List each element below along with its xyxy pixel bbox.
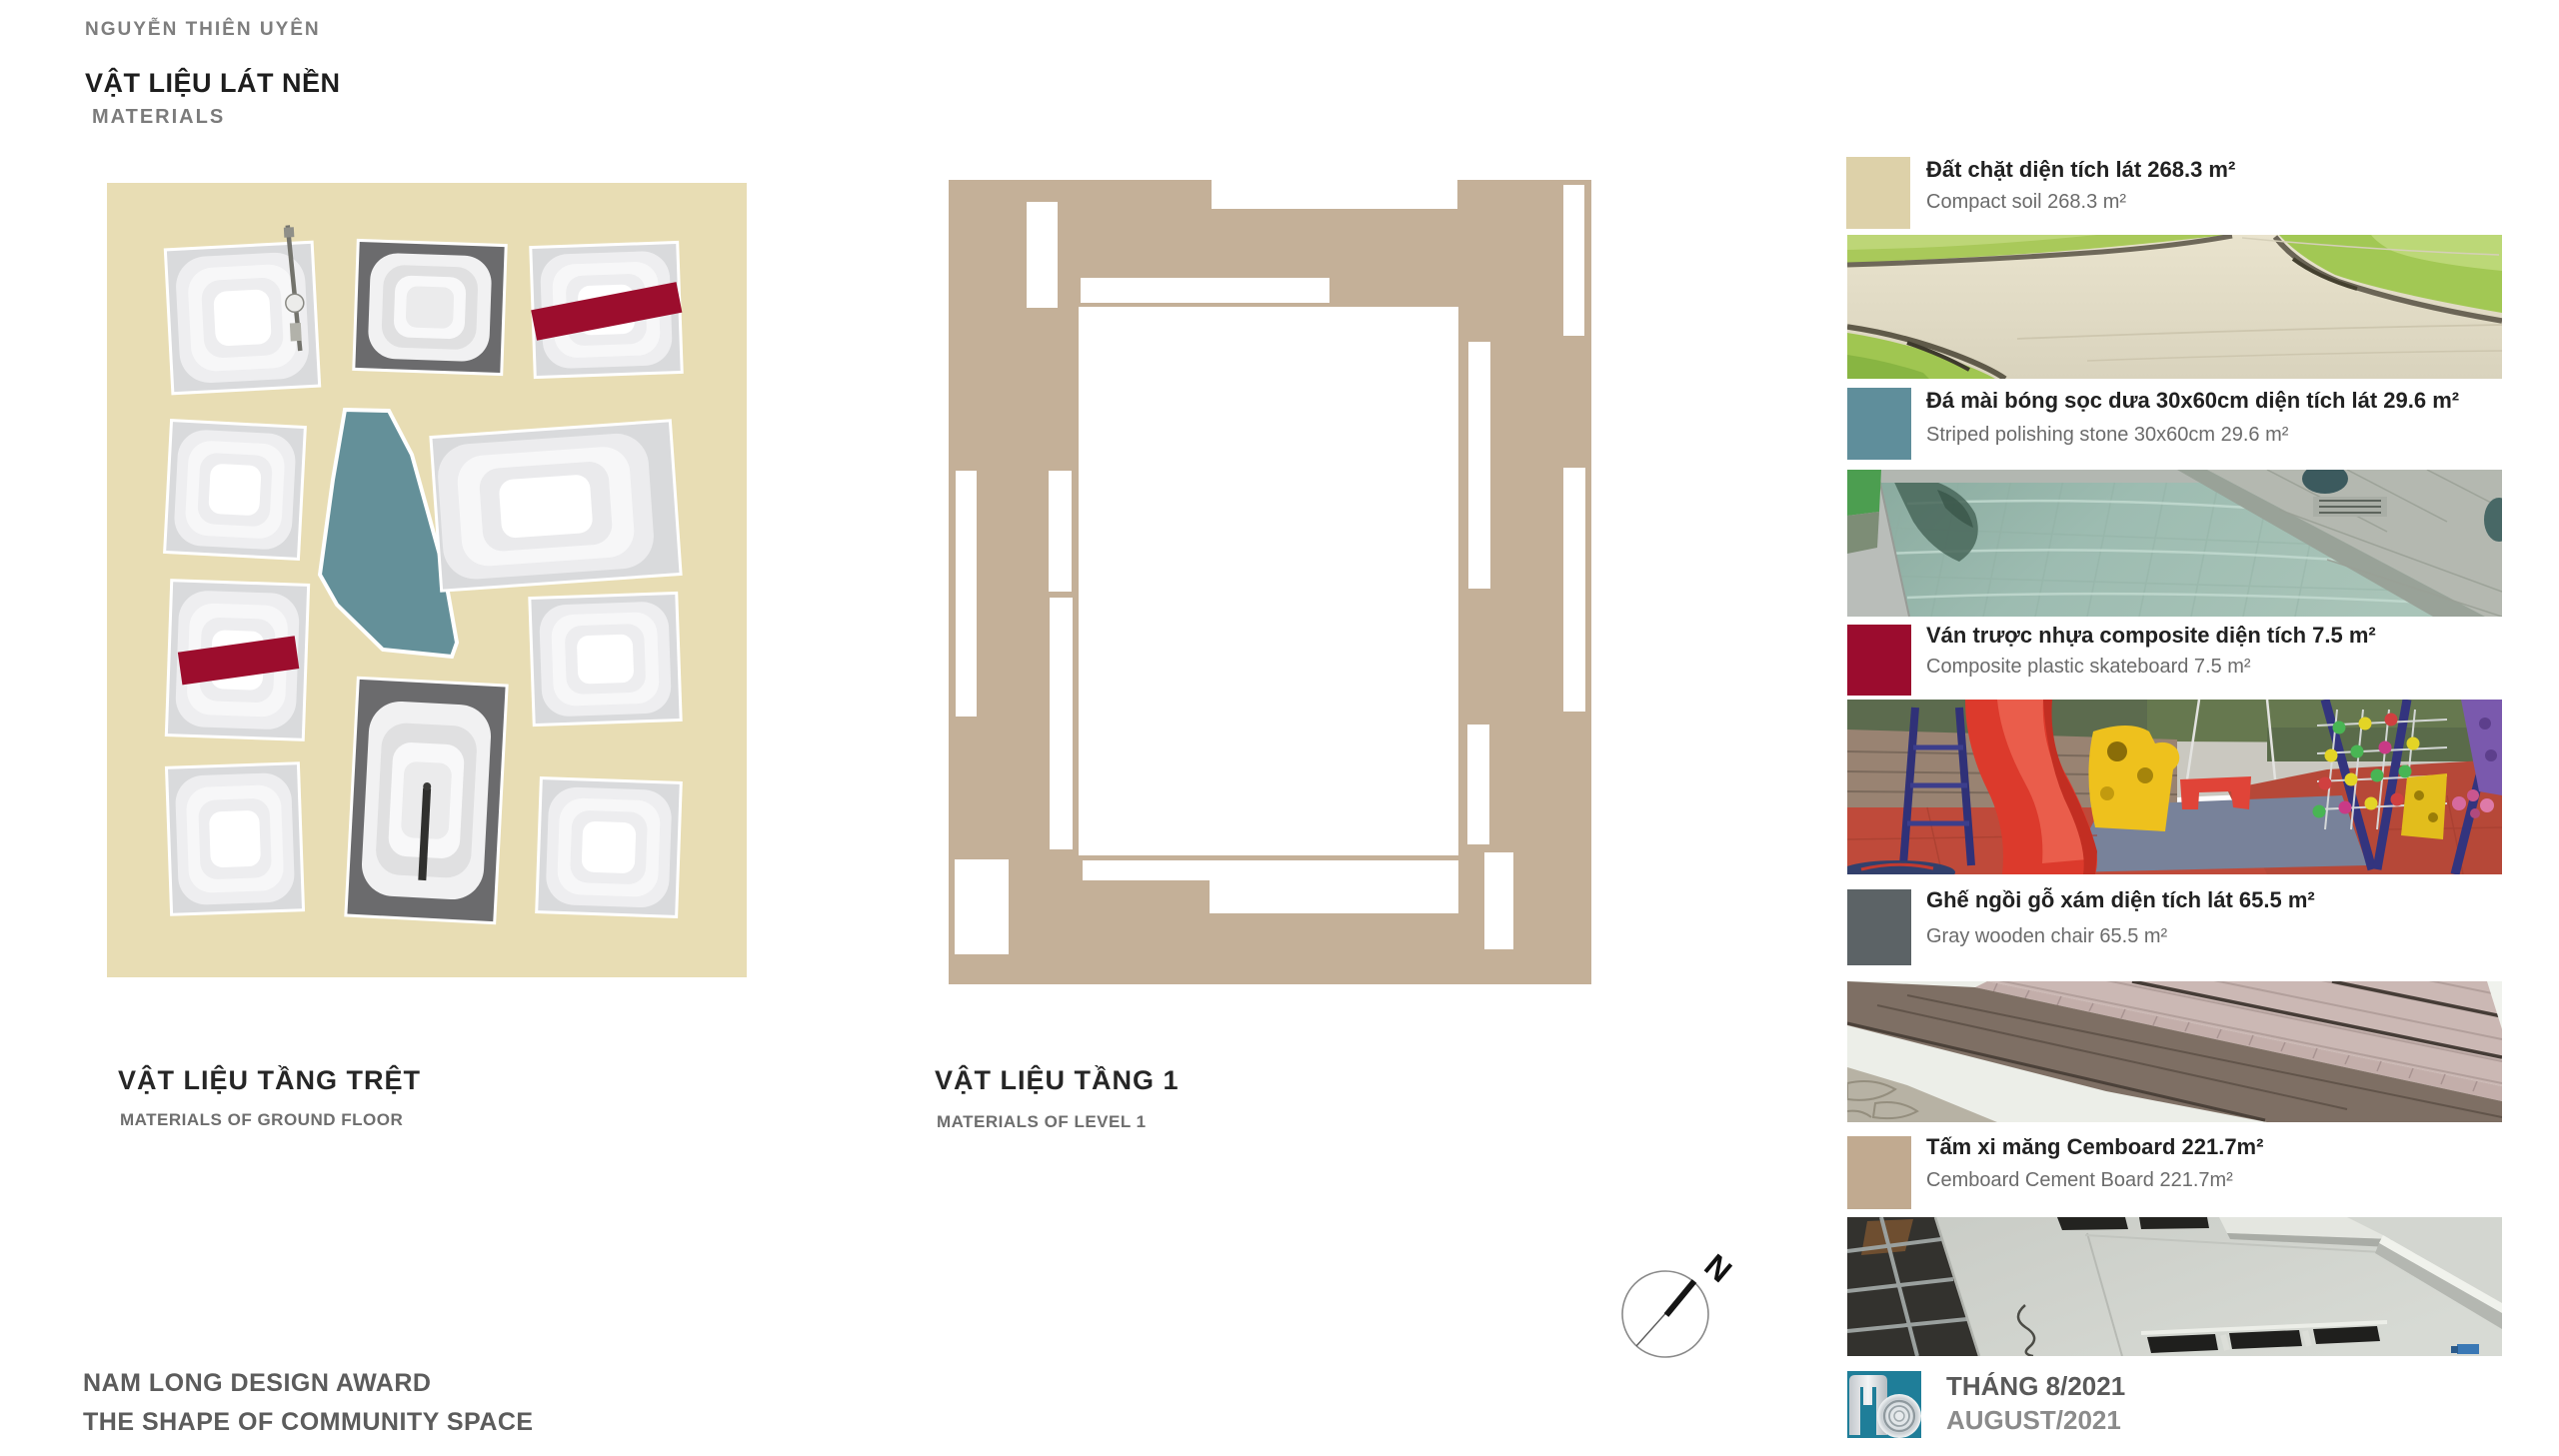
svg-text:N: N [1698, 1247, 1739, 1289]
